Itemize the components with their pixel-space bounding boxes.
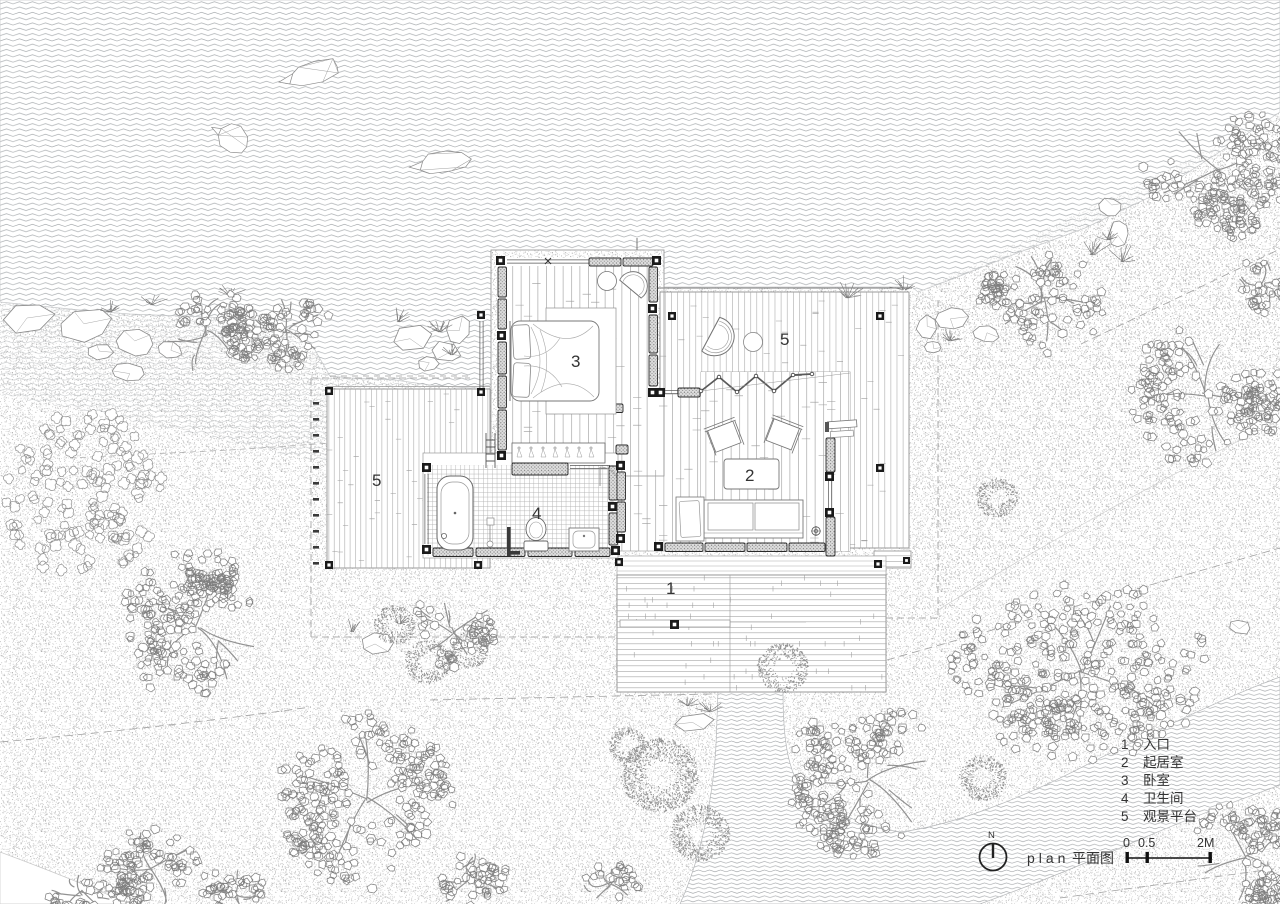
svg-text:卧室: 卧室 bbox=[1143, 772, 1170, 788]
svg-text:2: 2 bbox=[1121, 755, 1129, 770]
svg-text:N: N bbox=[988, 830, 995, 841]
svg-text:起居室: 起居室 bbox=[1143, 754, 1184, 770]
svg-text:2M: 2M bbox=[1197, 836, 1214, 850]
svg-text:0.5: 0.5 bbox=[1138, 836, 1155, 850]
svg-text:入口: 入口 bbox=[1143, 737, 1170, 752]
svg-text:5: 5 bbox=[372, 471, 381, 490]
svg-text:3: 3 bbox=[571, 352, 580, 371]
svg-text:平面图: 平面图 bbox=[1072, 850, 1114, 866]
svg-text:plan: plan bbox=[1027, 850, 1069, 866]
svg-text:5: 5 bbox=[1121, 809, 1129, 824]
svg-text:观景平台: 观景平台 bbox=[1143, 809, 1197, 824]
svg-text:4: 4 bbox=[532, 504, 541, 523]
svg-text:3: 3 bbox=[1121, 773, 1129, 788]
svg-text:5: 5 bbox=[780, 330, 789, 349]
svg-text:卫生间: 卫生间 bbox=[1143, 791, 1184, 806]
svg-text:1: 1 bbox=[1121, 737, 1129, 752]
svg-text:2: 2 bbox=[745, 466, 754, 485]
svg-text:0: 0 bbox=[1123, 836, 1130, 850]
svg-text:4: 4 bbox=[1121, 791, 1129, 806]
svg-text:1: 1 bbox=[666, 579, 675, 598]
